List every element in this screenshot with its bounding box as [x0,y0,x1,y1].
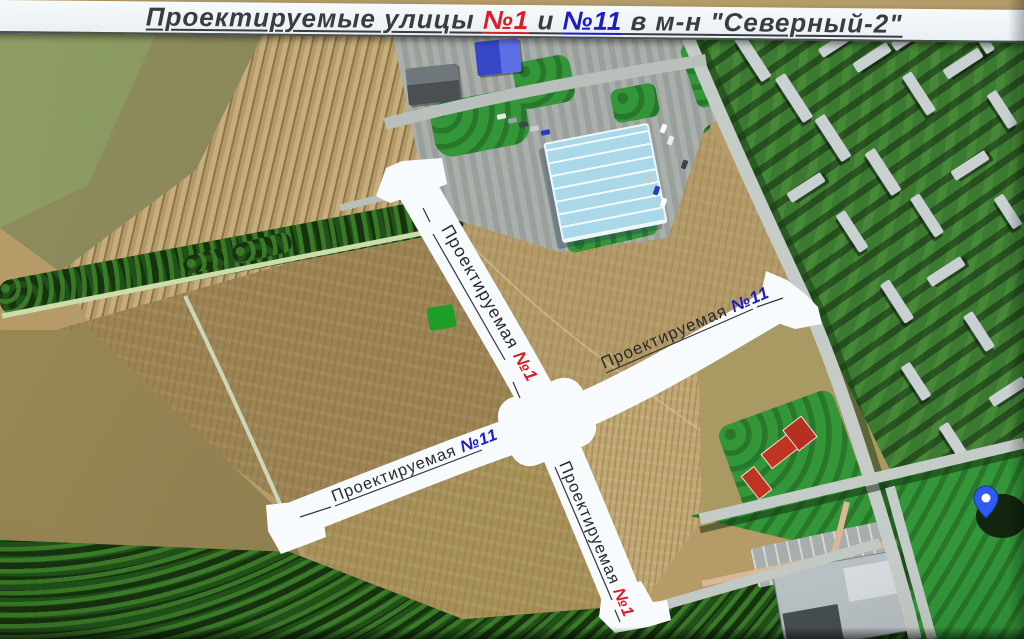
road-commercial [385,60,706,124]
title-suffix: в м-н "Северный-2" [622,6,902,39]
road-bottom-diagonal [640,543,880,612]
label-road1-top: Проектируемая №1 [438,221,543,385]
country-lane [185,296,287,520]
title-street-1: №1 [483,5,530,35]
presentation-photo: Проектируемая №1 Проектируемая №11 Проек… [0,0,1024,639]
country-lane [2,226,458,316]
map-pin-icon [974,486,998,518]
title-street-11: №11 [562,5,622,36]
title-prefix: Проектируемые улицы [146,1,483,34]
roads-overlay: Проектируемая №1 Проектируемая №11 Проек… [0,0,1024,639]
title-and: и [529,5,563,35]
map-image: Проектируемая №1 Проектируемая №11 Проек… [0,0,1024,639]
road-flare-west [266,501,326,554]
